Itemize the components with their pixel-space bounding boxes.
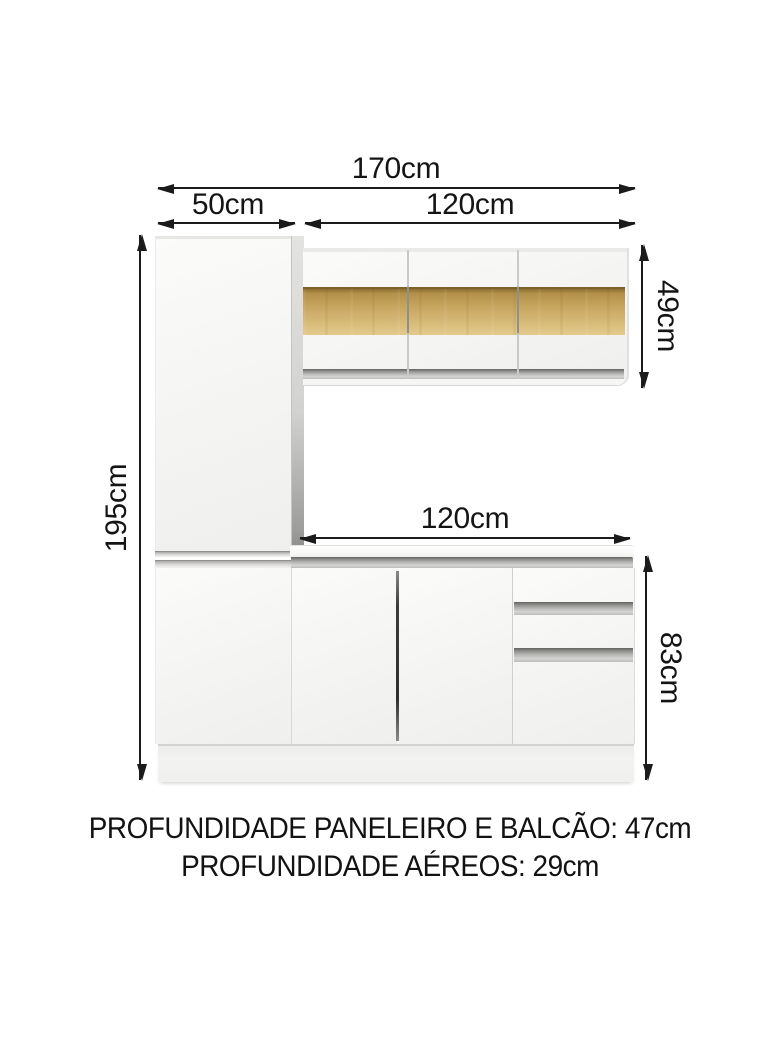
counter-handle-strip: [291, 557, 633, 568]
dimension-diagram: 170cm 50cm 120cm 120cm 195cm 49cm 83cm P…: [0, 0, 780, 1040]
arrow-upper-cabinets-width: [305, 222, 635, 224]
footer-depth-notes: PROFUNDIDADE PANELEIRO E BALCÃO: 47cm PR…: [0, 812, 780, 884]
tall-cabinet-upper-door: [155, 236, 292, 551]
tall-cabinet-lower-door: [155, 568, 292, 744]
footer-line-depth-uppers: PROFUNDIDADE AÉREOS: 29cm: [27, 850, 752, 884]
arrow-counter-height: [645, 556, 647, 780]
glass-reflection-texture: [303, 289, 625, 335]
upper-cabinets-top-edge: [303, 248, 627, 252]
counter-door-left: [291, 568, 398, 744]
drawer-handle-1: [514, 602, 633, 615]
tall-cabinet-handle-strip-top: [155, 551, 291, 557]
label-counter-height: 83cm: [653, 632, 687, 704]
tall-cabinet-handle-strip-bottom: [155, 560, 291, 568]
arrow-counter-width: [300, 537, 630, 539]
arrow-upper-cabinets-height: [641, 245, 643, 388]
label-left-cabinet-width: 50cm: [192, 188, 264, 222]
plinth: [158, 744, 634, 782]
amber-glass-strip: [303, 287, 625, 335]
label-upper-cabinets-width: 120cm: [426, 188, 515, 222]
label-total-width: 170cm: [352, 152, 441, 186]
drawer-handle-2: [514, 648, 633, 662]
label-upper-cabinets-height: 49cm: [650, 280, 684, 352]
upper-cabinets-bottom-edge: [303, 379, 625, 386]
label-total-height: 195cm: [100, 464, 134, 553]
arrow-total-height: [139, 235, 141, 780]
label-counter-width: 120cm: [421, 502, 510, 536]
upper-cabinets-handle-strip: [303, 369, 624, 379]
footer-line-depth-pantry-counter: PROFUNDIDADE PANELEIRO E BALCÃO: 47cm: [27, 812, 752, 846]
upper-door-divider-left: [407, 250, 409, 379]
arrow-left-cabinet-width: [158, 222, 295, 224]
upper-door-divider-right: [517, 250, 519, 379]
counter-door-right: [399, 568, 512, 744]
